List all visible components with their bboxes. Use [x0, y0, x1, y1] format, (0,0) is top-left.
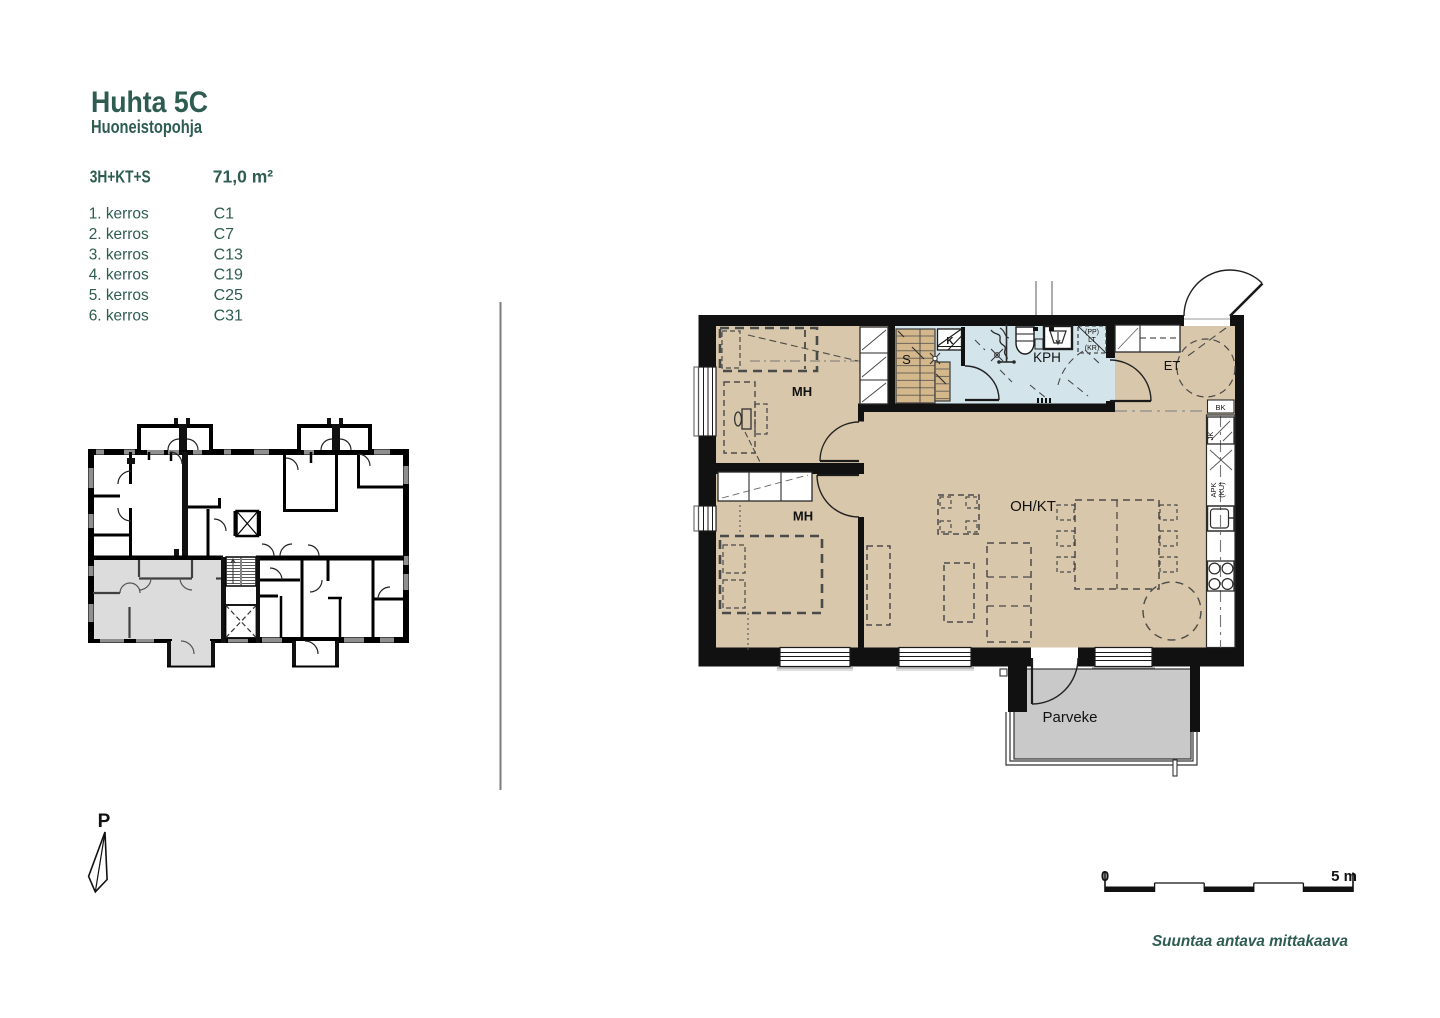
svg-text:C19: C19 [214, 267, 243, 284]
svg-text:Suuntaa antava mittakaava: Suuntaa antava mittakaava [1152, 933, 1348, 950]
svg-text:P: P [98, 811, 111, 832]
svg-text:ET: ET [1164, 358, 1181, 373]
svg-text:JK: JK [1206, 432, 1215, 441]
svg-text:K: K [946, 336, 954, 347]
svg-text:OH/KT: OH/KT [1010, 498, 1056, 515]
svg-text:(KU): (KU) [1217, 482, 1226, 498]
svg-text:3H+KT+S: 3H+KT+S [90, 167, 151, 187]
svg-text:3. kerros: 3. kerros [89, 246, 149, 263]
svg-text:KPH: KPH [1033, 350, 1061, 365]
svg-text:Huhta 5C: Huhta 5C [91, 86, 208, 119]
svg-text:Huoneistopohja: Huoneistopohja [91, 117, 203, 137]
svg-text:BK: BK [1215, 403, 1225, 412]
svg-text:MH: MH [792, 384, 812, 399]
svg-text:LT: LT [1088, 337, 1096, 344]
svg-text:5 m: 5 m [1331, 868, 1357, 885]
svg-text:C31: C31 [214, 308, 243, 325]
svg-text:(KR): (KR) [1085, 345, 1099, 352]
svg-text:4. kerros: 4. kerros [89, 267, 149, 284]
svg-text:Parveke: Parveke [1042, 709, 1097, 726]
svg-text:6. kerros: 6. kerros [89, 308, 149, 325]
svg-text:1. kerros: 1. kerros [89, 206, 149, 223]
svg-text:C1: C1 [214, 206, 235, 223]
svg-text:S: S [902, 352, 911, 367]
svg-text:71,0 m²: 71,0 m² [213, 167, 273, 187]
svg-text:C25: C25 [214, 287, 243, 304]
svg-text:2. kerros: 2. kerros [89, 226, 149, 243]
svg-text:5. kerros: 5. kerros [89, 287, 149, 304]
svg-text:C13: C13 [214, 246, 243, 263]
svg-text:(PP): (PP) [1085, 329, 1099, 336]
svg-text:C7: C7 [214, 226, 235, 243]
svg-text:0: 0 [1101, 868, 1109, 885]
svg-text:MH: MH [793, 509, 813, 524]
